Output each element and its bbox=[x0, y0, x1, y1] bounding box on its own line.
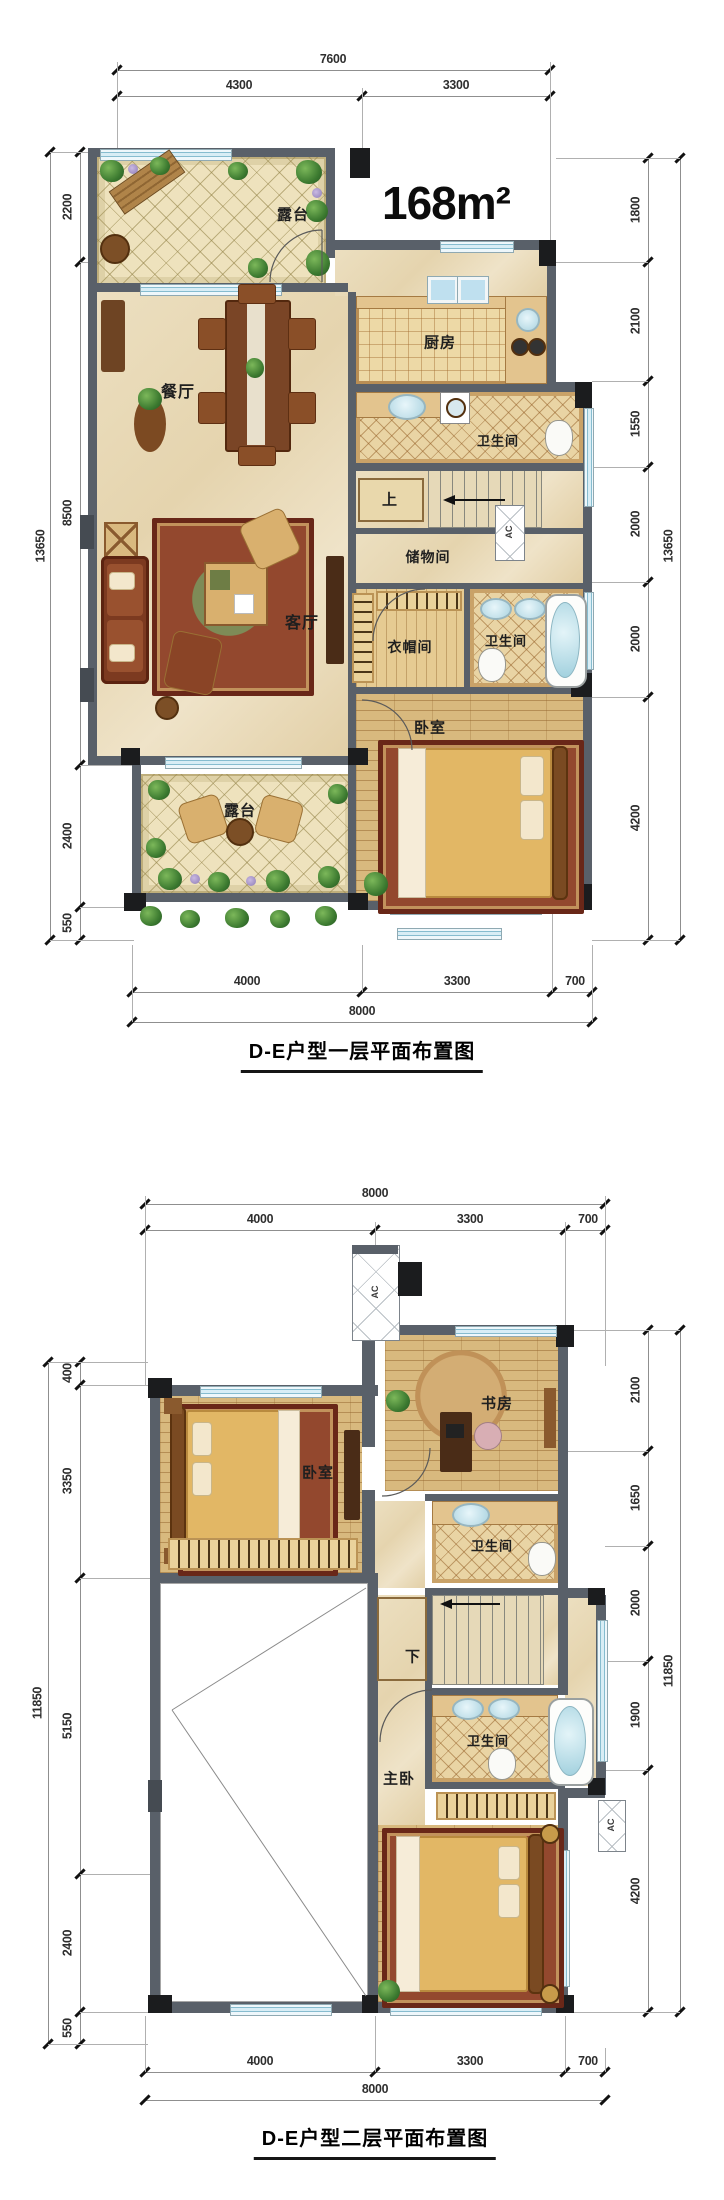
room-label-master: 主卧 bbox=[383, 1768, 415, 1789]
ext-line bbox=[80, 765, 134, 766]
pillow bbox=[109, 572, 135, 590]
dim-line bbox=[80, 1362, 81, 2044]
flower-icon bbox=[128, 164, 138, 174]
dim-value: 8500 bbox=[60, 500, 75, 526]
wall bbox=[150, 1385, 160, 2013]
dim-line bbox=[50, 152, 51, 940]
plant-icon bbox=[364, 872, 388, 896]
ext-line bbox=[550, 62, 551, 242]
dim-value: 400 bbox=[60, 1363, 75, 1383]
plant-icon bbox=[315, 906, 337, 926]
ext-line bbox=[556, 262, 648, 263]
dim-value: 3300 bbox=[444, 973, 470, 988]
stove-burner bbox=[511, 338, 529, 356]
column bbox=[148, 1780, 162, 1812]
dim-value: 11850 bbox=[30, 1687, 45, 1719]
dim-value: 4000 bbox=[247, 1211, 273, 1226]
shelf bbox=[544, 1388, 556, 1448]
stairs-treads bbox=[432, 1595, 544, 1685]
floor1-caption: D-E户型一层平面布置图 bbox=[241, 1035, 483, 1073]
dim-tick bbox=[599, 2094, 610, 2105]
pillow bbox=[192, 1462, 212, 1496]
dim-value: 3300 bbox=[457, 1211, 483, 1226]
room-label-closet: 衣帽间 bbox=[388, 637, 433, 657]
sink bbox=[514, 598, 546, 620]
wall bbox=[132, 893, 362, 902]
ext-line bbox=[605, 1546, 648, 1547]
dim-value: 11850 bbox=[661, 1655, 676, 1687]
room-label-bedroom: 卧室 bbox=[414, 717, 446, 738]
bath-counter bbox=[432, 1501, 558, 1525]
dim-line bbox=[117, 96, 550, 97]
toilet bbox=[528, 1542, 556, 1576]
dim-value: 1900 bbox=[628, 1702, 643, 1728]
dim-value: 1800 bbox=[628, 197, 643, 223]
table-decor bbox=[234, 594, 254, 614]
pillow bbox=[192, 1422, 212, 1456]
ext-line bbox=[375, 2016, 376, 2072]
sideboard bbox=[101, 300, 125, 372]
stairs-up-label: 上 bbox=[382, 489, 398, 510]
plant-icon bbox=[140, 906, 162, 926]
wall bbox=[348, 384, 587, 392]
ext-line bbox=[80, 2012, 150, 2013]
room-label-storage: 储物间 bbox=[406, 547, 451, 567]
ext-line bbox=[605, 1661, 648, 1662]
table-decor bbox=[210, 570, 230, 590]
dim-line bbox=[145, 1204, 605, 1205]
chair bbox=[238, 446, 276, 466]
chair bbox=[238, 284, 276, 304]
plant-icon bbox=[225, 908, 249, 928]
dim-line bbox=[132, 1022, 592, 1023]
ext-line bbox=[80, 1874, 150, 1875]
ac-label: AC bbox=[504, 526, 514, 539]
side-table bbox=[540, 1984, 560, 2004]
dim-value: 2200 bbox=[60, 194, 75, 220]
chair bbox=[288, 318, 316, 350]
wall bbox=[425, 1588, 565, 1595]
room-label-living: 客厅 bbox=[285, 609, 319, 633]
ext-line bbox=[552, 914, 553, 992]
ac-label: AC bbox=[370, 1286, 380, 1299]
window bbox=[165, 757, 302, 769]
ext-line bbox=[568, 2012, 680, 2013]
ext-line bbox=[568, 1330, 680, 1331]
wall bbox=[348, 463, 587, 471]
bathtub-water bbox=[550, 602, 580, 678]
dim-value: 550 bbox=[60, 913, 75, 933]
ext-line bbox=[592, 945, 593, 1022]
plant-icon bbox=[306, 200, 328, 222]
room-label-bath-b2: 卫生间 bbox=[467, 1731, 509, 1750]
stair-landing-floor bbox=[544, 1595, 558, 1685]
pillow bbox=[520, 800, 544, 840]
room-label-bath-a2: 卫生间 bbox=[471, 1536, 513, 1555]
dim-line bbox=[680, 158, 681, 940]
ext-line bbox=[605, 2048, 606, 2072]
dim-line bbox=[145, 2100, 605, 2101]
pillow bbox=[109, 644, 135, 662]
sink bbox=[452, 1503, 490, 1527]
toilet bbox=[488, 1748, 516, 1780]
dim-value: 4200 bbox=[628, 805, 643, 831]
nightstand bbox=[164, 1398, 182, 1414]
dim-value: 700 bbox=[578, 1211, 598, 1226]
ext-line bbox=[592, 697, 648, 698]
dim-value: 2400 bbox=[60, 1930, 75, 1956]
wall bbox=[352, 1245, 398, 1254]
terrace-table bbox=[100, 234, 130, 264]
wall bbox=[132, 765, 141, 902]
ext-line bbox=[605, 1196, 606, 1366]
ext-line bbox=[50, 152, 88, 153]
washer-door bbox=[446, 398, 466, 418]
stairs-down-label: 下 bbox=[405, 1646, 421, 1667]
ext-line bbox=[80, 1385, 150, 1386]
bed-sheet bbox=[278, 1410, 300, 1558]
plant-icon bbox=[318, 866, 340, 888]
wardrobe-hangers bbox=[168, 1538, 358, 1570]
ext-line bbox=[145, 2016, 146, 2072]
dim-value: 2400 bbox=[60, 823, 75, 849]
dim-line bbox=[648, 158, 649, 940]
dim-value: 700 bbox=[565, 973, 585, 988]
dim-value: 3300 bbox=[457, 2053, 483, 2068]
headboard bbox=[528, 1834, 544, 1994]
room-label-terrace-top: 露台 bbox=[277, 204, 309, 225]
plant-icon bbox=[228, 162, 248, 180]
dim-value: 8000 bbox=[349, 1003, 375, 1018]
ext-line bbox=[132, 945, 133, 1022]
chair bbox=[198, 392, 226, 424]
dim-value: 13650 bbox=[661, 530, 676, 563]
dim-value: 3300 bbox=[443, 77, 469, 92]
dim-line bbox=[648, 1330, 649, 2012]
room-label-bath-b: 卫生间 bbox=[485, 631, 527, 650]
room-label-bath-a: 卫生间 bbox=[477, 431, 519, 450]
ext-line bbox=[592, 381, 648, 382]
pillow bbox=[498, 1846, 520, 1880]
column bbox=[348, 893, 368, 910]
wall bbox=[362, 1490, 375, 1583]
wall bbox=[425, 1782, 565, 1789]
side-table bbox=[155, 696, 179, 720]
plant-icon bbox=[386, 1390, 410, 1412]
dim-value: 2000 bbox=[628, 511, 643, 537]
ext-line bbox=[605, 1770, 648, 1771]
closet-hangers bbox=[352, 593, 374, 683]
dim-line bbox=[680, 1330, 681, 2012]
bathtub-water bbox=[554, 1706, 586, 1776]
plant-icon bbox=[100, 160, 124, 182]
column bbox=[348, 748, 368, 765]
window bbox=[455, 1326, 557, 1337]
wall bbox=[362, 1330, 375, 1447]
dresser bbox=[344, 1430, 360, 1520]
storage-floor bbox=[356, 534, 583, 583]
flower-icon bbox=[190, 874, 200, 884]
ext-line bbox=[592, 940, 680, 941]
window bbox=[584, 408, 594, 507]
dim-value: 7600 bbox=[320, 51, 346, 66]
ext-line bbox=[362, 88, 363, 150]
ext-line bbox=[565, 1222, 566, 1326]
floor2-caption: D-E户型二层平面布置图 bbox=[254, 2122, 496, 2160]
sink bbox=[480, 598, 512, 620]
ext-line bbox=[592, 467, 648, 468]
dim-line bbox=[48, 1362, 49, 2044]
laptop bbox=[446, 1424, 464, 1438]
plant-icon bbox=[296, 160, 322, 184]
bed-sheet bbox=[396, 1836, 420, 1992]
dim-value: 4000 bbox=[234, 973, 260, 988]
dim-value: 4000 bbox=[247, 2053, 273, 2068]
closet-hangers bbox=[376, 591, 462, 611]
chair bbox=[198, 318, 226, 350]
stove-burner bbox=[528, 338, 546, 356]
window bbox=[230, 2004, 332, 2016]
sink bbox=[452, 1698, 484, 1720]
ext-line bbox=[556, 158, 680, 159]
dim-value: 4300 bbox=[226, 77, 252, 92]
dim-value: 8000 bbox=[362, 1185, 388, 1200]
ac-label: AC bbox=[606, 1819, 616, 1832]
stair-landing-frame bbox=[377, 1597, 427, 1681]
room-label-kitchen: 厨房 bbox=[424, 332, 456, 353]
hall-floor bbox=[375, 1501, 425, 1588]
area-label: 168m² bbox=[382, 176, 510, 230]
toilet bbox=[545, 420, 573, 456]
plant-icon bbox=[158, 868, 182, 890]
desk bbox=[440, 1412, 472, 1472]
column bbox=[398, 1262, 422, 1296]
wall bbox=[348, 528, 587, 534]
column bbox=[80, 668, 94, 702]
chair bbox=[288, 392, 316, 424]
side-table bbox=[540, 1824, 560, 1844]
dim-value: 3350 bbox=[60, 1468, 75, 1494]
dim-value: 2100 bbox=[628, 1377, 643, 1403]
column bbox=[539, 240, 556, 266]
dim-line bbox=[117, 70, 550, 71]
ext-line bbox=[48, 1362, 148, 1363]
window bbox=[200, 1386, 322, 1398]
double-height-void bbox=[160, 1583, 368, 2002]
terrace-table bbox=[226, 818, 254, 846]
ext-line bbox=[362, 945, 363, 992]
dim-value: 8000 bbox=[362, 2081, 388, 2096]
room-label-terrace-bottom: 露台 bbox=[224, 800, 256, 821]
window bbox=[597, 1620, 608, 1762]
column bbox=[121, 748, 140, 765]
plant-icon bbox=[148, 780, 170, 800]
column bbox=[148, 1995, 172, 2013]
ext-line bbox=[565, 2016, 566, 2072]
plant-icon bbox=[266, 870, 290, 892]
plant-icon bbox=[138, 388, 162, 410]
wall bbox=[464, 589, 470, 687]
dim-value: 5150 bbox=[60, 1713, 75, 1739]
plant-icon bbox=[150, 157, 170, 175]
wall bbox=[348, 687, 587, 694]
sink bbox=[388, 394, 426, 420]
dim-value: 550 bbox=[60, 2018, 75, 2038]
dim-value: 13650 bbox=[33, 530, 48, 563]
floorplan-canvas: 7600 4300 3300 13650 2200 8500 2400 550 … bbox=[0, 0, 724, 2200]
plant-icon bbox=[270, 910, 290, 928]
column bbox=[80, 515, 94, 549]
ext-line bbox=[145, 1196, 146, 1386]
window bbox=[397, 928, 502, 940]
flower-icon bbox=[312, 188, 322, 198]
column bbox=[362, 1995, 378, 2013]
tv-console bbox=[326, 556, 344, 664]
column bbox=[148, 1378, 172, 1398]
room-label-study: 书房 bbox=[481, 1393, 513, 1414]
kitchen-sink bbox=[516, 308, 540, 332]
wall bbox=[558, 1325, 568, 1595]
bed-sheet bbox=[398, 748, 426, 898]
wall bbox=[558, 1595, 568, 1695]
window bbox=[440, 241, 514, 253]
ext-line bbox=[568, 1451, 648, 1452]
headboard bbox=[552, 746, 568, 900]
centerpiece bbox=[246, 358, 264, 378]
dim-value: 2000 bbox=[628, 626, 643, 652]
wall bbox=[425, 1494, 565, 1501]
sink bbox=[488, 1698, 520, 1720]
ext-line bbox=[50, 940, 134, 941]
room-label-dining: 餐厅 bbox=[161, 378, 195, 402]
dim-value: 2000 bbox=[628, 1590, 643, 1616]
ext-line bbox=[592, 582, 648, 583]
window bbox=[458, 277, 488, 303]
plant-icon bbox=[328, 784, 348, 804]
wall bbox=[88, 148, 97, 292]
desk-chair bbox=[474, 1422, 502, 1450]
window bbox=[428, 277, 458, 303]
pillow bbox=[498, 1884, 520, 1918]
dim-value: 4200 bbox=[628, 1878, 643, 1904]
wall bbox=[425, 1688, 565, 1695]
plant-icon bbox=[306, 250, 330, 276]
flower-icon bbox=[246, 876, 256, 886]
ext-line bbox=[117, 62, 118, 148]
plant-icon bbox=[378, 1980, 400, 2002]
pillow bbox=[520, 756, 544, 796]
dim-value: 2100 bbox=[628, 308, 643, 334]
ext-line bbox=[80, 1578, 150, 1579]
column bbox=[575, 382, 592, 408]
dim-value: 1550 bbox=[628, 411, 643, 437]
plant-icon bbox=[248, 258, 268, 278]
room-label-bedroom2: 卧室 bbox=[302, 1462, 334, 1483]
toilet bbox=[478, 648, 506, 682]
column bbox=[556, 1325, 574, 1347]
plant-icon bbox=[180, 910, 200, 928]
ext-line bbox=[48, 2044, 148, 2045]
column bbox=[588, 1588, 605, 1605]
dim-value: 700 bbox=[578, 2053, 598, 2068]
plant-icon bbox=[146, 838, 166, 858]
dim-value: 1650 bbox=[628, 1485, 643, 1511]
wardrobe-hangers bbox=[436, 1792, 556, 1820]
decor-cabinet bbox=[104, 522, 138, 558]
plant-icon bbox=[208, 872, 230, 892]
column bbox=[350, 148, 370, 178]
